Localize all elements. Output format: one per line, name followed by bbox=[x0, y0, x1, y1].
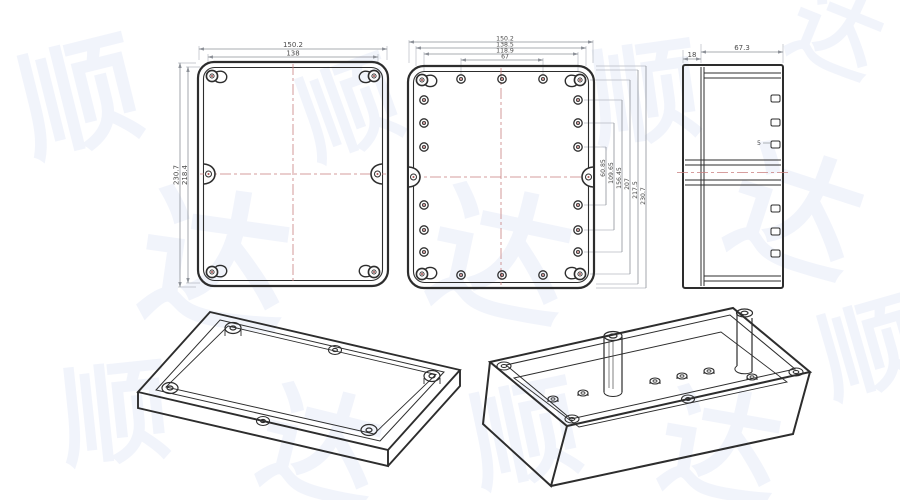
lid-corner-screw bbox=[206, 70, 226, 82]
base-corner-screw bbox=[565, 267, 585, 279]
base-side-boss bbox=[409, 167, 420, 187]
technical-drawing: 150.2 138 230.7 218.4 bbox=[0, 0, 900, 500]
side-dim-tab: 5 bbox=[757, 140, 761, 147]
base-corner-screw bbox=[565, 74, 585, 86]
base-side-boss bbox=[582, 167, 593, 187]
lid-iso-mid-bosses bbox=[257, 346, 342, 426]
lid-dim-width-inner: 138 bbox=[286, 50, 299, 58]
base-iso-rim bbox=[490, 308, 810, 426]
base-dim-right-3: 156.45 bbox=[616, 167, 623, 189]
lid-dim-height-outer: 230.7 bbox=[173, 165, 181, 185]
base-corner-screw bbox=[416, 267, 436, 279]
lid-corner-screw bbox=[206, 265, 226, 277]
lid-dim-height-inner: 218.4 bbox=[181, 164, 189, 185]
side-dim-base-depth: 67.3 bbox=[734, 44, 750, 52]
base-dim-right-6: 230.7 bbox=[640, 187, 647, 205]
base-dim-right-1: 60.85 bbox=[600, 159, 607, 177]
side-view: 18 67.3 5 bbox=[677, 44, 789, 288]
base-dim-top-4: 67 bbox=[501, 54, 509, 61]
lid-isometric-view bbox=[138, 312, 460, 466]
base-top-view: 150.2 138.5 118.9 67 60.85 109.65 156.45… bbox=[408, 36, 647, 289]
base-centerlines bbox=[410, 68, 592, 286]
base-dim-right-2: 109.65 bbox=[608, 162, 615, 184]
base-isometric-view bbox=[483, 308, 810, 486]
lid-centerlines bbox=[200, 64, 386, 284]
lid-dim-width-outer: 150.2 bbox=[283, 41, 303, 49]
lid-side-boss bbox=[371, 164, 382, 184]
base-iso-walls bbox=[483, 362, 810, 486]
lid-corner-screw bbox=[359, 265, 379, 277]
base-corner-screw bbox=[416, 74, 436, 86]
base-dim-right-4: 207 bbox=[624, 178, 631, 190]
side-outline bbox=[683, 65, 783, 288]
lid-iso-sides bbox=[138, 370, 460, 466]
lid-iso-rim bbox=[138, 312, 460, 450]
lid-iso-corner-bosses bbox=[162, 323, 440, 436]
side-clip-tabs bbox=[771, 95, 780, 257]
base-iso-tall-pillar bbox=[604, 332, 622, 397]
lid-top-view: 150.2 138 230.7 218.4 bbox=[173, 41, 389, 287]
base-dim-right-5: 217.5 bbox=[632, 181, 639, 199]
side-dimension-lines bbox=[683, 52, 783, 59]
side-dim-lid-depth: 18 bbox=[688, 51, 697, 59]
base-iso-corner-pillar bbox=[735, 309, 753, 374]
side-extension-lines bbox=[683, 44, 783, 63]
lid-corner-screw bbox=[359, 70, 379, 82]
base-iso-floor-bosses bbox=[548, 368, 757, 402]
drawing-canvas: 顺 达 顺 达 顺 达 顺 达 顺 达 顺 达 bbox=[0, 0, 900, 500]
lid-side-boss bbox=[204, 164, 215, 184]
side-detail-lines bbox=[685, 67, 781, 286]
